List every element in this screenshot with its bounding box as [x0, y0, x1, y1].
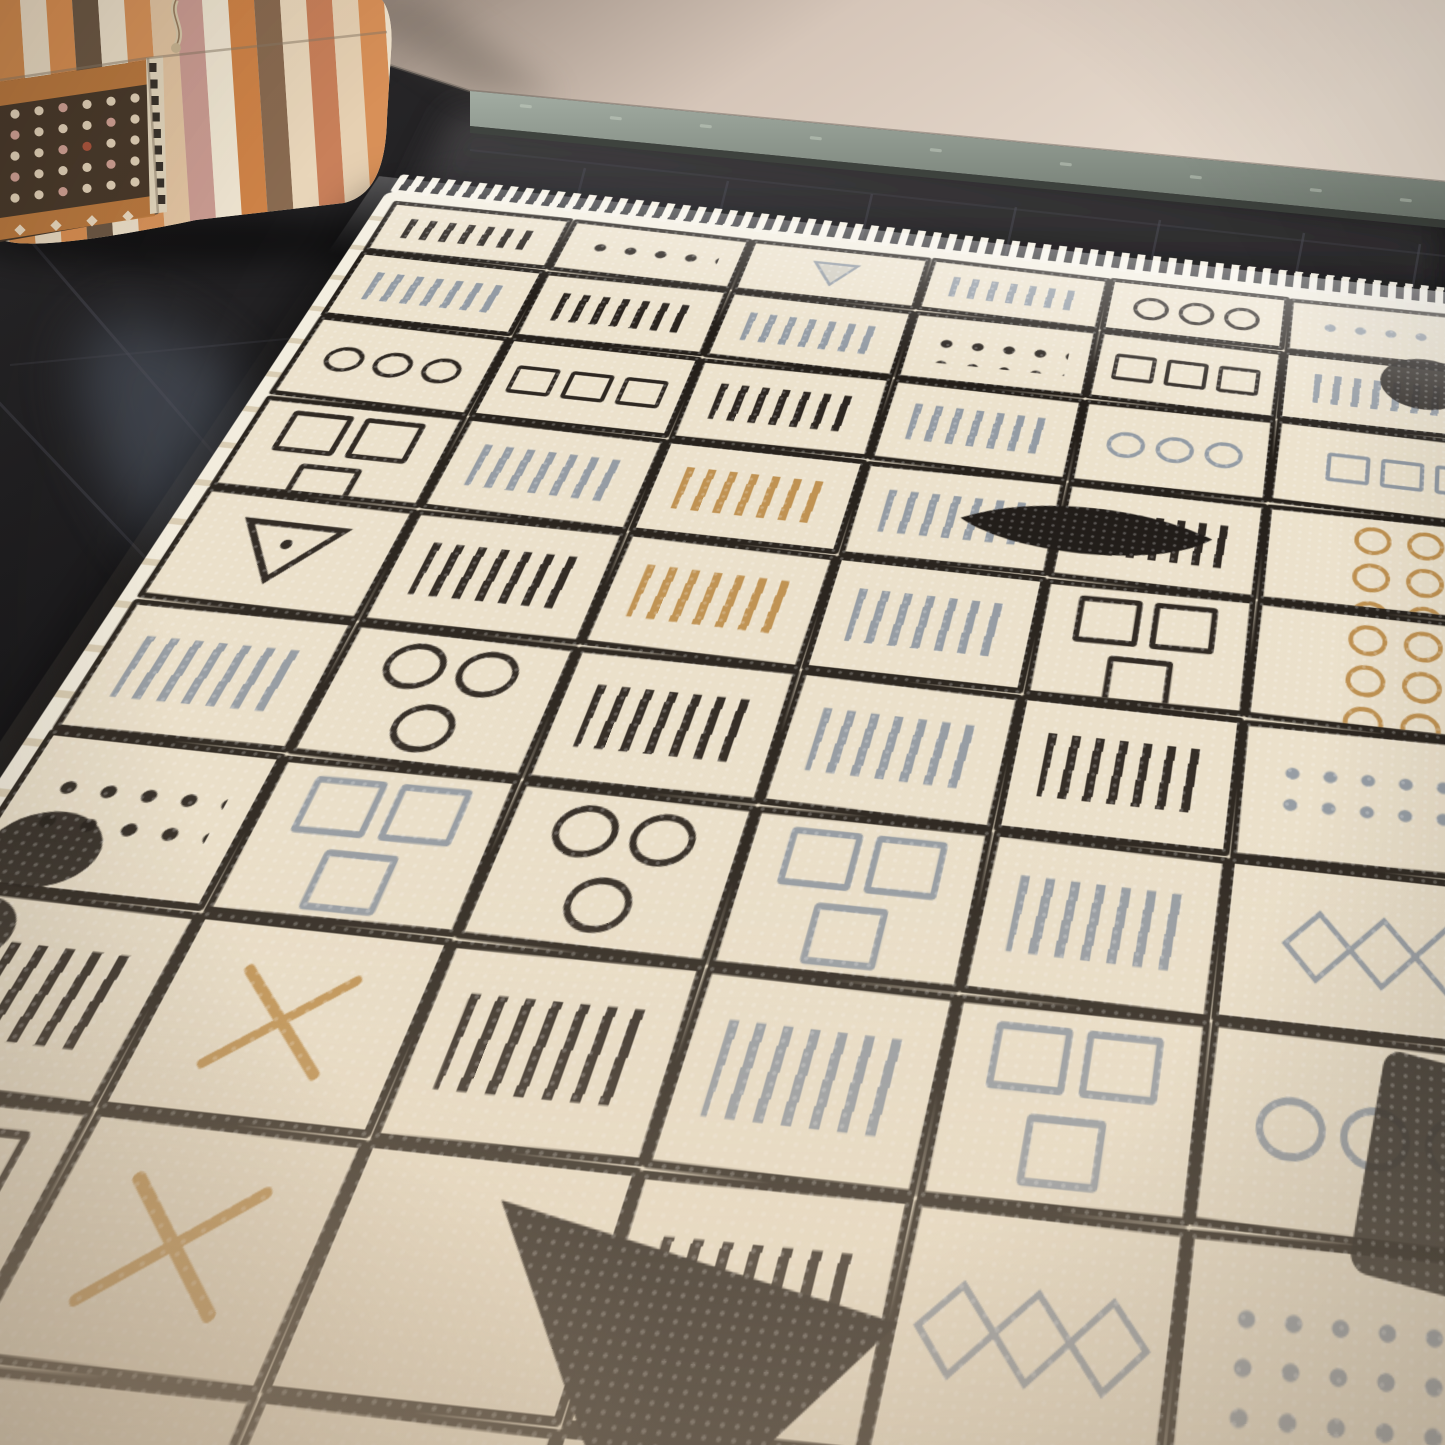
- rug-motif-x: [41, 1162, 299, 1334]
- pouf-dash: [158, 195, 166, 204]
- pouf-panel-dot: [82, 121, 91, 130]
- rug-motif-boxes: [559, 371, 616, 403]
- rug-motif-tallies: [1313, 374, 1445, 423]
- pouf-panel-dot: [34, 169, 43, 178]
- rug-motif-dots: [0, 1439, 188, 1445]
- rug-cell: [993, 694, 1244, 857]
- rug-motif-tallies: [948, 277, 1081, 312]
- pouf-panel-dot: [106, 139, 115, 148]
- pouf-dash: [149, 63, 157, 72]
- rug-motif-boxes: [0, 1123, 33, 1208]
- rug-motif-circles: [1131, 296, 1170, 322]
- rug-motif-dots: [1213, 1292, 1445, 1445]
- rug-motif-boxes: [270, 410, 355, 456]
- rug-motif-tallies: [804, 707, 981, 789]
- rug-motif-dots: [579, 237, 722, 273]
- rug-motif-tallies: [905, 403, 1052, 454]
- pouf-panel-dot: [34, 127, 43, 136]
- pouf-panel-dot: [58, 124, 67, 133]
- pouf-panel-dot: [58, 166, 67, 175]
- pouf-panel-dot: [130, 177, 139, 186]
- rug-motif-tallies: [626, 564, 797, 634]
- rug-motif-tallies: [700, 1019, 910, 1138]
- rug-motif-boxes: [1163, 359, 1209, 390]
- rug-motif-circles: [446, 649, 527, 701]
- rug-motif-boxes: [297, 849, 400, 916]
- rug-motif-diamonds: [1281, 910, 1354, 984]
- pouf-dash: [150, 80, 158, 89]
- rug-motif-diamonds: [913, 1280, 998, 1380]
- pouf-panel-dot: [82, 163, 91, 172]
- pouf-panel-dot: [130, 93, 139, 102]
- pouf-panel-dot: [34, 190, 43, 199]
- pouf-dash: [157, 179, 165, 188]
- pouf-panel-dot: [58, 187, 67, 196]
- rug-motif-circles: [1104, 430, 1147, 459]
- rug-motif-boxes: [1078, 1029, 1165, 1104]
- rug-motif-diamonds: [989, 1289, 1074, 1390]
- pouf-dash: [155, 146, 163, 155]
- rug-motif-triangle: [772, 256, 893, 292]
- rug-motif-boxes: [1325, 452, 1371, 485]
- pouf-dash: [151, 96, 159, 105]
- rug-motif-tallies: [1084, 510, 1235, 569]
- pouf-panel-dot: [82, 142, 91, 151]
- pouf-panel-dot: [10, 193, 19, 202]
- rug-motif-circles: [1153, 435, 1195, 464]
- rug-motif-tallies: [573, 684, 756, 763]
- rug-motif-boxes: [1101, 655, 1174, 710]
- rug-motif-boxes: [376, 784, 474, 847]
- pouf-panel-dot: [130, 156, 139, 165]
- rug-motif-tallies: [707, 383, 857, 432]
- pouf-panel-dot: [130, 135, 139, 144]
- rug-motif-boxes: [1216, 365, 1262, 396]
- pouf-panel-dot: [10, 109, 19, 118]
- pouf-panel-dot: [130, 114, 139, 123]
- pouf-dash: [156, 162, 164, 171]
- rug-cell: [707, 806, 993, 993]
- rug-motif-boxes: [799, 902, 889, 971]
- pouf-panel-dot: [58, 103, 67, 112]
- rug-cell: [1023, 578, 1256, 716]
- rug-motif-boxes: [505, 365, 562, 397]
- pouf-panel-dot: [10, 130, 19, 139]
- pouf-panel-dot: [106, 97, 115, 106]
- rug-cell: [958, 830, 1230, 1023]
- rug-motif-circles: [1222, 306, 1260, 332]
- rug-cell: [1160, 1229, 1445, 1445]
- rug-motif-boxes: [1380, 458, 1425, 492]
- rug-motif-tallies: [361, 272, 509, 314]
- pouf-panel-dot: [10, 151, 19, 160]
- rug-motif-dots: [9, 769, 235, 867]
- rug-motif-boxes: [1111, 353, 1158, 384]
- rug-cell: [859, 1197, 1189, 1445]
- rug-motif-circles: [554, 874, 641, 936]
- rug-motif-diamonds: [1065, 1298, 1150, 1399]
- pouf-panel-dot: [106, 181, 115, 190]
- rug-motif-circles: [380, 701, 465, 756]
- pouf-panel-dot: [106, 118, 115, 127]
- rug-motif-tallies: [550, 293, 695, 334]
- kilim-pouf: [0, 0, 426, 266]
- rug-motif-circles: [1202, 440, 1243, 469]
- rug-motif-circles: [1253, 1093, 1328, 1165]
- rug-motif-dots: [925, 332, 1071, 377]
- rug-motif-triangle: [195, 514, 365, 592]
- pouf-dash: [153, 129, 161, 138]
- pouf-panel-dot: [106, 160, 115, 169]
- rug-motif-tallies: [433, 993, 653, 1107]
- rug-motif-circles: [1338, 1104, 1411, 1176]
- rug-motif-diamonds: [1411, 924, 1445, 998]
- rug-motif-tallies: [739, 312, 881, 355]
- rug-motif-tallies: [109, 636, 306, 713]
- rug-motif-tallies: [400, 219, 539, 251]
- rug-motif-circles: [317, 345, 370, 374]
- rug-motif-tallies: [0, 935, 137, 1051]
- rug-motif-x: [167, 956, 393, 1089]
- rug-motif-tallies: [464, 444, 627, 502]
- rug-cell: [757, 669, 1023, 832]
- rug-motif-tallies: [1036, 733, 1206, 814]
- rug-motif-boxes: [614, 376, 670, 408]
- rug-motif-boxes: [289, 775, 389, 838]
- rug-motif-circles: [1424, 1114, 1445, 1187]
- rug-motif-boxes: [776, 827, 864, 892]
- rug-motif-circles: [543, 802, 627, 861]
- rug-motif-circles: [366, 351, 419, 380]
- rug-motif-tallies: [844, 588, 1009, 657]
- rug-motif-tallies: [407, 542, 583, 610]
- rug-motif-diamonds: [1346, 917, 1419, 991]
- rug-motif-boxes: [985, 1020, 1074, 1095]
- rug-motif-circles: [1177, 301, 1216, 327]
- rug-motif-boxes: [1434, 465, 1445, 499]
- pouf-dash: [152, 113, 160, 122]
- rug-motif-tallies: [626, 1236, 860, 1382]
- rug-motif-circles: [415, 357, 467, 386]
- rug-motif-circles: [373, 641, 456, 693]
- rug-motif-tallies: [670, 467, 829, 524]
- rug-motif-boxes: [1149, 602, 1219, 654]
- rug-motif-dots: [1269, 756, 1445, 848]
- pouf-panel-dot: [58, 145, 67, 154]
- rug-motif-tallies: [1005, 875, 1189, 972]
- rug-motif-boxes: [343, 418, 427, 464]
- rug-motif-boxes: [1072, 595, 1144, 647]
- rug-cell: [916, 994, 1211, 1227]
- pouf-panel-dot: [34, 106, 43, 115]
- rug-motif-boxes: [863, 835, 949, 900]
- pouf-panel-dot: [34, 148, 43, 157]
- rug-motif-dots: [1314, 317, 1445, 357]
- pouf-panel-dot: [82, 184, 91, 193]
- photo-canvas: [0, 0, 1445, 1445]
- rug-motif-circles: [621, 811, 704, 870]
- pouf-panel-dot: [10, 172, 19, 181]
- pouf-panel-dot: [82, 100, 91, 109]
- rug-motif-tallies: [877, 489, 1031, 545]
- rug-motif-boxes: [1016, 1112, 1107, 1192]
